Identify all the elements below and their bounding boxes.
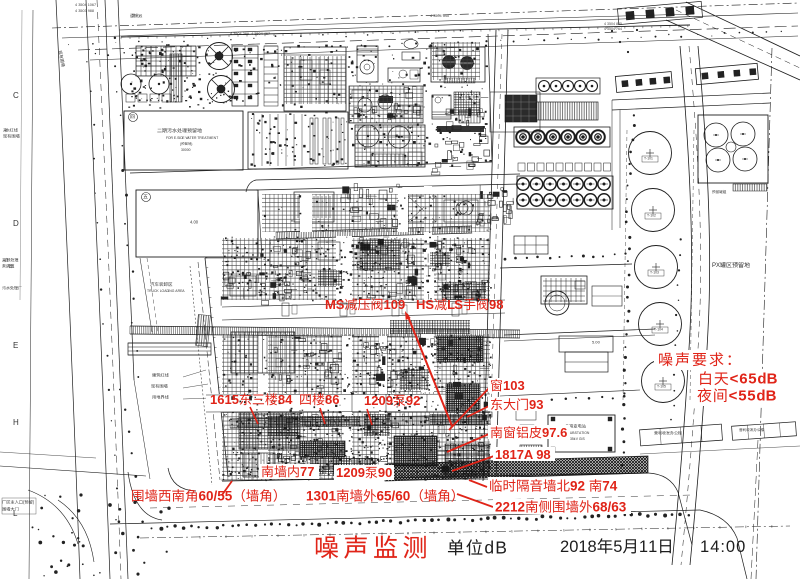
svg-text:6: 6 [560, 425, 567, 440]
svg-text:4: 4 [285, 392, 293, 407]
svg-text:2: 2 [495, 499, 503, 514]
svg-text:1: 1 [384, 297, 391, 312]
svg-text:道: 道 [10, 262, 14, 268]
svg-text:): ) [191, 142, 192, 146]
svg-text:6: 6 [332, 392, 339, 407]
svg-text:7: 7 [300, 464, 307, 479]
svg-text:<: < [729, 388, 738, 405]
svg-text:D: D [13, 219, 19, 228]
svg-text:7: 7 [602, 478, 610, 493]
svg-text:9: 9 [358, 465, 365, 480]
svg-text:8: 8 [502, 447, 509, 462]
svg-text:0: 0 [726, 538, 735, 556]
svg-text:0: 0 [569, 538, 578, 556]
svg-text:S: S [425, 297, 434, 312]
svg-text:0: 0 [321, 488, 329, 503]
svg-text:0: 0 [510, 378, 517, 393]
svg-text:2: 2 [343, 465, 350, 480]
svg-text:9: 9 [570, 478, 578, 493]
svg-text:5: 5 [738, 388, 746, 405]
svg-text:1: 1 [210, 392, 217, 407]
svg-text:2: 2 [560, 538, 569, 556]
svg-text:1: 1 [639, 538, 648, 556]
svg-text:5: 5 [747, 388, 755, 405]
svg-text:2: 2 [413, 393, 420, 408]
svg-text:9: 9 [489, 297, 496, 312]
svg-text:4: 4 [75, 3, 77, 7]
svg-text:G: G [172, 289, 175, 293]
svg-text:S: S [454, 297, 463, 312]
svg-text:S: S [336, 297, 345, 312]
svg-text:8: 8 [278, 392, 285, 407]
svg-text:1: 1 [503, 378, 510, 393]
svg-text:0: 0 [403, 488, 411, 503]
svg-text:4: 4 [613, 22, 615, 26]
svg-text:0: 0 [189, 148, 191, 152]
svg-text:d: d [756, 388, 765, 405]
svg-text:4: 4 [440, 14, 442, 18]
svg-text:E: E [13, 341, 18, 350]
svg-text:4: 4 [430, 14, 432, 18]
svg-text:3: 3 [619, 499, 627, 514]
svg-text:5: 5 [620, 22, 622, 26]
svg-text:5: 5 [232, 392, 239, 407]
svg-text:3: 3 [657, 270, 659, 274]
svg-text:9: 9 [398, 297, 405, 312]
svg-text:A: A [524, 447, 534, 462]
svg-text:1: 1 [648, 538, 657, 556]
svg-text::: : [720, 538, 725, 556]
svg-text:4: 4 [604, 22, 606, 26]
svg-text:2: 2 [503, 499, 511, 514]
svg-text:1: 1 [510, 447, 517, 462]
svg-text:8: 8 [588, 538, 597, 556]
svg-text:4: 4 [613, 27, 615, 31]
svg-text:9: 9 [536, 447, 543, 462]
svg-text:4: 4 [620, 27, 622, 31]
svg-text:T: T [216, 136, 218, 140]
svg-text:X: X [716, 263, 720, 269]
svg-text:0: 0 [351, 465, 358, 480]
svg-text:7: 7 [94, 3, 96, 7]
svg-text:1: 1 [329, 488, 337, 503]
svg-text:5: 5 [748, 371, 756, 388]
svg-text:1: 1 [336, 465, 343, 480]
svg-text:4: 4 [710, 538, 719, 556]
svg-text:B: B [766, 388, 777, 405]
svg-text:1: 1 [364, 393, 371, 408]
svg-text:1: 1 [225, 392, 232, 407]
svg-text:4: 4 [75, 9, 77, 13]
svg-text:0: 0 [206, 488, 214, 503]
svg-text:0: 0 [385, 465, 392, 480]
svg-text:B: B [495, 538, 507, 558]
svg-text:1: 1 [651, 156, 653, 160]
svg-text:5: 5 [664, 384, 666, 388]
svg-text:1: 1 [578, 538, 587, 556]
svg-text:8: 8 [543, 447, 550, 462]
svg-text:0: 0 [391, 297, 398, 312]
svg-text:9: 9 [529, 397, 536, 412]
svg-text:2: 2 [518, 499, 526, 514]
svg-text:0: 0 [379, 393, 386, 408]
svg-text:4: 4 [604, 27, 606, 31]
svg-text:3: 3 [536, 397, 543, 412]
svg-text:4: 4 [610, 478, 618, 493]
svg-text:4: 4 [661, 327, 663, 331]
svg-text:8: 8 [496, 297, 503, 312]
svg-text:3: 3 [518, 378, 525, 393]
svg-text:M: M [325, 297, 336, 312]
svg-text:9: 9 [378, 465, 385, 480]
svg-text:0: 0 [736, 538, 745, 556]
svg-text:4: 4 [230, 32, 232, 36]
svg-text:9: 9 [386, 393, 393, 408]
svg-text:H: H [416, 297, 425, 312]
svg-text:6: 6 [217, 392, 224, 407]
svg-text:5: 5 [225, 488, 233, 503]
svg-text:H: H [13, 418, 19, 427]
svg-text:d: d [757, 371, 766, 388]
svg-text:9: 9 [542, 425, 549, 440]
svg-text:d: d [484, 538, 494, 558]
svg-text:7: 7 [307, 464, 314, 479]
svg-text:1: 1 [700, 538, 709, 556]
svg-text:5: 5 [447, 14, 449, 18]
svg-text:心: 心 [136, 13, 140, 18]
svg-text:8: 8 [325, 392, 332, 407]
svg-text:9: 9 [406, 393, 413, 408]
svg-text:C: C [13, 91, 19, 100]
svg-text:7: 7 [517, 447, 524, 462]
svg-text:8: 8 [92, 9, 94, 13]
svg-text:组: 组 [723, 189, 727, 194]
svg-text:1: 1 [495, 447, 502, 462]
svg-text:2: 2 [578, 478, 586, 493]
svg-text:7: 7 [549, 425, 556, 440]
svg-text:2: 2 [654, 213, 656, 217]
svg-text:B: B [767, 371, 778, 388]
svg-text:5: 5 [613, 538, 622, 556]
svg-text:2: 2 [371, 393, 378, 408]
svg-text:<: < [730, 371, 739, 388]
svg-text:6: 6 [739, 371, 747, 388]
